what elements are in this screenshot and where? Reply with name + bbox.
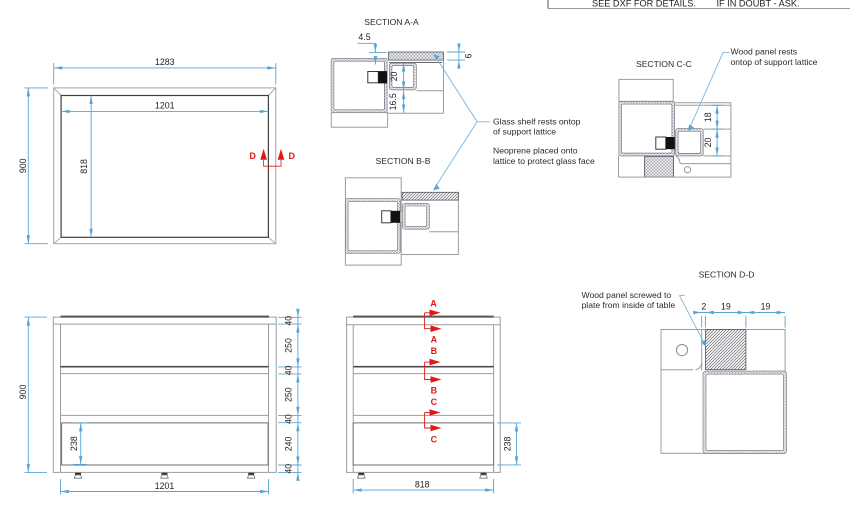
svg-text:Wood panel rests: Wood panel rests bbox=[731, 47, 798, 57]
svg-text:6: 6 bbox=[464, 53, 474, 58]
svg-text:20: 20 bbox=[389, 72, 399, 82]
svg-text:250: 250 bbox=[284, 338, 294, 353]
svg-text:Wood panel screwed to: Wood panel screwed to bbox=[582, 290, 672, 300]
svg-text:A: A bbox=[430, 298, 437, 308]
svg-text:lattice to protect glass face: lattice to protect glass face bbox=[493, 156, 595, 166]
svg-text:19: 19 bbox=[721, 302, 731, 312]
svg-text:SEE DXF FOR DETAILS.: SEE DXF FOR DETAILS. bbox=[592, 0, 696, 9]
svg-text:1201: 1201 bbox=[155, 481, 175, 491]
svg-text:B: B bbox=[431, 346, 438, 356]
svg-text:18: 18 bbox=[703, 112, 713, 122]
svg-text:900: 900 bbox=[18, 385, 28, 400]
svg-text:818: 818 bbox=[415, 479, 430, 489]
svg-text:C: C bbox=[431, 434, 438, 444]
svg-text:40: 40 bbox=[284, 365, 294, 375]
svg-text:19: 19 bbox=[761, 302, 771, 312]
svg-text:2: 2 bbox=[701, 302, 706, 312]
svg-text:818: 818 bbox=[79, 159, 89, 174]
svg-text:SECTION B-B: SECTION B-B bbox=[376, 156, 431, 166]
svg-text:240: 240 bbox=[284, 436, 294, 451]
svg-text:250: 250 bbox=[284, 387, 294, 402]
svg-text:A: A bbox=[431, 334, 438, 344]
svg-text:D: D bbox=[289, 151, 296, 161]
svg-text:of support lattice: of support lattice bbox=[493, 127, 556, 137]
svg-text:ontop of support lattice: ontop of support lattice bbox=[731, 57, 818, 67]
svg-text:40: 40 bbox=[284, 316, 294, 326]
svg-text:D: D bbox=[249, 151, 256, 161]
svg-text:40: 40 bbox=[284, 464, 294, 474]
svg-text:C: C bbox=[431, 397, 438, 407]
svg-text:4.5: 4.5 bbox=[358, 32, 370, 42]
svg-text:238: 238 bbox=[69, 436, 79, 451]
svg-text:40: 40 bbox=[284, 414, 294, 424]
svg-text:900: 900 bbox=[18, 158, 28, 173]
svg-text:B: B bbox=[431, 386, 438, 396]
svg-text:SECTION D-D: SECTION D-D bbox=[699, 269, 755, 279]
svg-text:SECTION A-A: SECTION A-A bbox=[364, 17, 419, 27]
svg-text:1283: 1283 bbox=[155, 57, 175, 67]
svg-text:SECTION C-C: SECTION C-C bbox=[636, 59, 692, 69]
svg-text:1201: 1201 bbox=[155, 101, 175, 111]
svg-text:20: 20 bbox=[703, 138, 713, 148]
svg-text:Glass shelf rests ontop: Glass shelf rests ontop bbox=[493, 116, 581, 126]
svg-text:Neoprene placed onto: Neoprene placed onto bbox=[493, 146, 578, 156]
svg-text:16.5: 16.5 bbox=[388, 93, 398, 110]
svg-text:IF IN DOUBT - ASK.: IF IN DOUBT - ASK. bbox=[716, 0, 799, 9]
svg-text:238: 238 bbox=[502, 436, 512, 451]
svg-text:plate from inside of table: plate from inside of table bbox=[582, 300, 676, 310]
